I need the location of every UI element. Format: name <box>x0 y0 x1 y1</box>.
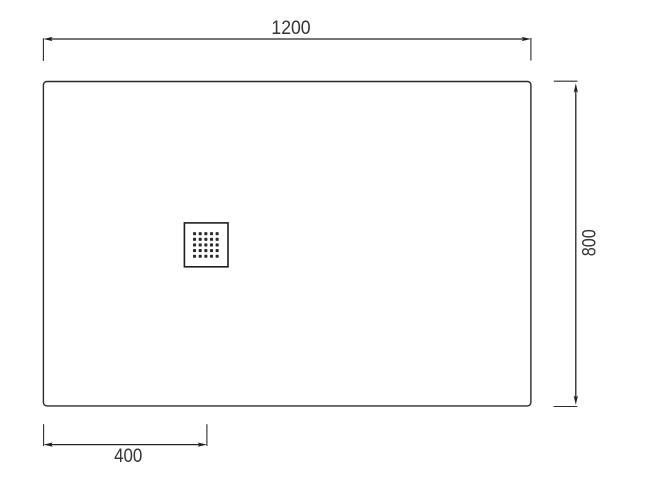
svg-text:800: 800 <box>578 229 600 256</box>
svg-text:400: 400 <box>114 445 142 467</box>
svg-text:1200: 1200 <box>271 17 310 39</box>
